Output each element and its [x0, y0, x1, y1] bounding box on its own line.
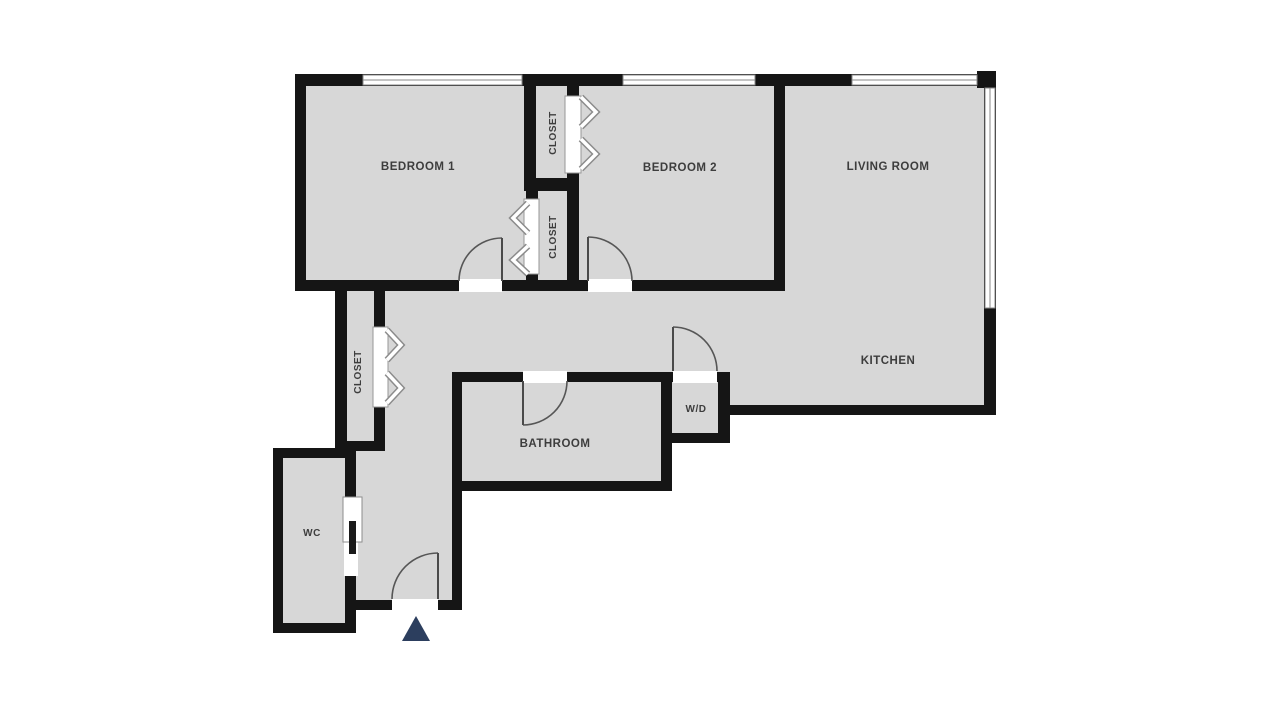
wall-segment [335, 280, 347, 452]
wall-segment [295, 280, 785, 291]
wall-segment [774, 74, 785, 291]
door-gap-bedroom1 [459, 279, 502, 292]
label-closet-top: CLOSET [548, 111, 559, 155]
label-kitchen: KITCHEN [861, 355, 916, 367]
wall-segment [526, 272, 538, 291]
window-living-right-icon [985, 88, 995, 308]
label-bedroom2: BEDROOM 2 [643, 162, 717, 174]
wall-segment [295, 74, 306, 291]
wall-segment [718, 405, 996, 415]
wall-segment [374, 280, 385, 328]
floor-wc [277, 452, 351, 628]
closet-top-door [565, 96, 581, 173]
wall-segment [273, 448, 283, 633]
door-gap-bathroom [523, 371, 567, 383]
door-gap-wd [673, 371, 717, 383]
entrance-arrow-icon [402, 616, 430, 641]
label-closet-hall: CLOSET [353, 350, 364, 394]
closet-middle-door [524, 199, 539, 274]
label-bedroom1: BEDROOM 1 [381, 161, 455, 173]
floor-corridor-upper [340, 284, 760, 378]
wall-segment [452, 372, 462, 610]
wall-segment [567, 74, 579, 97]
floor-bathroom [456, 376, 668, 486]
door-gap-entry [392, 599, 438, 611]
floor-plan: BEDROOM 1 BEDROOM 2 LIVING ROOM KITCHEN … [0, 0, 1280, 720]
label-wc: WC [303, 528, 321, 539]
wall-segment [273, 623, 356, 633]
label-closet-middle: CLOSET [548, 215, 559, 259]
door-gap-bedroom2 [588, 279, 632, 292]
floor-corridor-leg [350, 372, 458, 605]
wall-segment [567, 172, 579, 291]
wall-segment [524, 74, 536, 191]
window-bedroom1-icon [363, 75, 522, 85]
label-living-room: LIVING ROOM [847, 161, 930, 173]
wall-segment [374, 406, 385, 451]
label-wd: W/D [686, 404, 707, 415]
floor-plan-page: BEDROOM 1 BEDROOM 2 LIVING ROOM KITCHEN … [0, 0, 1280, 720]
closet-hall-door [373, 327, 388, 407]
label-bathroom: BATHROOM [520, 438, 591, 450]
wall-segment [718, 372, 730, 443]
wall-segment [452, 481, 672, 491]
window-living-top-icon [852, 75, 977, 85]
wall-segment [661, 372, 672, 491]
window-bedroom2-icon [623, 75, 755, 85]
